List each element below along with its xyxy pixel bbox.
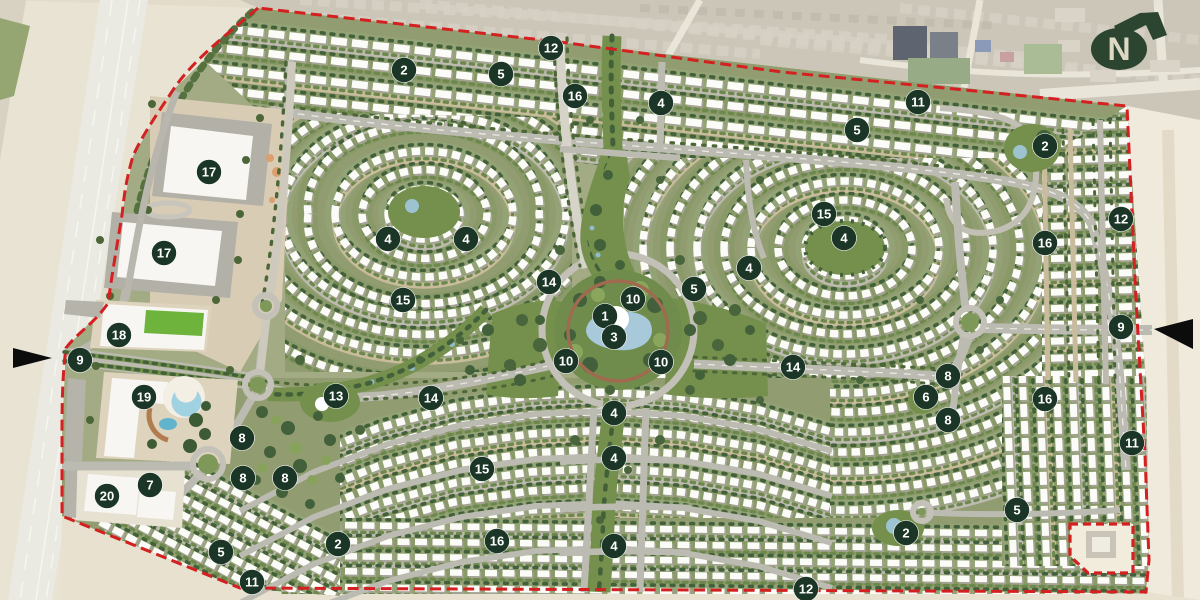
svg-text:14: 14 bbox=[786, 360, 801, 375]
svg-text:2: 2 bbox=[902, 526, 909, 541]
svg-text:2: 2 bbox=[1041, 139, 1048, 154]
svg-text:12: 12 bbox=[1114, 212, 1128, 227]
svg-text:10: 10 bbox=[559, 354, 573, 369]
svg-text:4: 4 bbox=[384, 232, 392, 247]
svg-text:5: 5 bbox=[1013, 503, 1020, 518]
svg-text:8: 8 bbox=[239, 471, 246, 486]
svg-text:11: 11 bbox=[245, 575, 259, 590]
svg-text:8: 8 bbox=[944, 369, 951, 384]
svg-text:5: 5 bbox=[853, 123, 860, 138]
svg-text:2: 2 bbox=[334, 537, 341, 552]
svg-text:8: 8 bbox=[944, 413, 951, 428]
svg-text:10: 10 bbox=[654, 355, 668, 370]
svg-text:11: 11 bbox=[1125, 436, 1139, 451]
svg-text:17: 17 bbox=[157, 246, 171, 261]
svg-text:6: 6 bbox=[922, 390, 929, 405]
svg-text:9: 9 bbox=[76, 353, 83, 368]
svg-text:7: 7 bbox=[146, 478, 153, 493]
svg-text:19: 19 bbox=[137, 390, 151, 405]
svg-text:15: 15 bbox=[475, 462, 489, 477]
svg-text:16: 16 bbox=[568, 89, 582, 104]
svg-text:15: 15 bbox=[817, 207, 831, 222]
svg-text:8: 8 bbox=[281, 471, 288, 486]
svg-text:8: 8 bbox=[238, 431, 245, 446]
svg-text:4: 4 bbox=[610, 451, 618, 466]
svg-text:16: 16 bbox=[1038, 236, 1052, 251]
svg-text:11: 11 bbox=[911, 95, 925, 110]
svg-text:10: 10 bbox=[626, 292, 640, 307]
svg-text:12: 12 bbox=[799, 582, 813, 597]
svg-text:4: 4 bbox=[840, 231, 848, 246]
svg-text:2: 2 bbox=[400, 63, 407, 78]
svg-text:N: N bbox=[1107, 31, 1130, 67]
svg-text:4: 4 bbox=[462, 232, 470, 247]
svg-text:9: 9 bbox=[1117, 320, 1124, 335]
svg-text:16: 16 bbox=[1038, 392, 1052, 407]
svg-text:14: 14 bbox=[424, 391, 439, 406]
svg-text:14: 14 bbox=[542, 275, 557, 290]
svg-text:5: 5 bbox=[690, 282, 697, 297]
svg-text:1: 1 bbox=[601, 309, 608, 324]
svg-text:16: 16 bbox=[490, 534, 504, 549]
svg-text:5: 5 bbox=[217, 545, 224, 560]
svg-text:18: 18 bbox=[112, 328, 126, 343]
svg-text:3: 3 bbox=[610, 330, 617, 345]
svg-text:15: 15 bbox=[396, 293, 410, 308]
svg-text:12: 12 bbox=[544, 41, 558, 56]
svg-text:4: 4 bbox=[745, 261, 753, 276]
svg-text:4: 4 bbox=[610, 539, 618, 554]
svg-text:20: 20 bbox=[100, 489, 114, 504]
svg-text:4: 4 bbox=[657, 96, 665, 111]
svg-text:13: 13 bbox=[329, 389, 343, 404]
svg-text:5: 5 bbox=[497, 67, 504, 82]
svg-text:4: 4 bbox=[610, 406, 618, 421]
svg-text:17: 17 bbox=[202, 165, 216, 180]
